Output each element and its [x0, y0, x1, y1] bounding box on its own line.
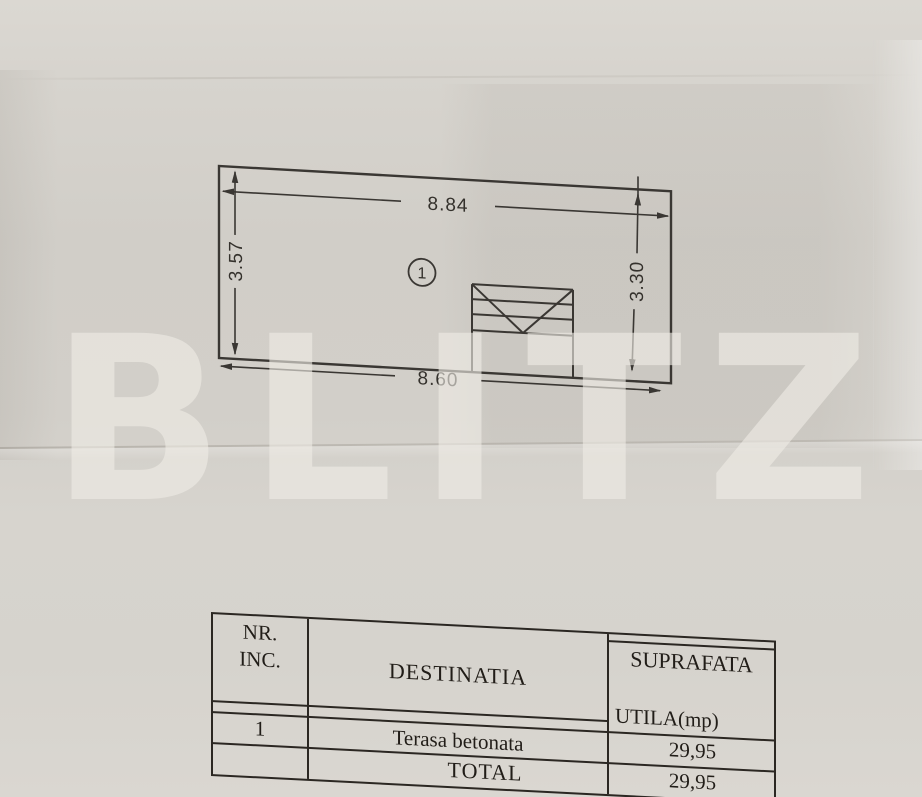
dimension-line-left: 3.57: [226, 171, 247, 354]
table-column-divider-2: [607, 634, 609, 794]
table-column-divider-1: [307, 619, 309, 779]
dimension-line-right: 3.30: [627, 176, 648, 371]
stair-symbol: [472, 284, 573, 378]
dimension-line-top: 8.84: [223, 182, 668, 228]
row1-nr-cell: 1: [213, 714, 307, 744]
room-number-label: 1: [418, 265, 427, 282]
dimension-label-top: 8.84: [428, 194, 469, 217]
dimension-label-right: 3.30: [627, 260, 648, 302]
header-nr-line1: NR.: [213, 618, 307, 648]
dimension-label-left: 3.57: [226, 240, 247, 282]
header-nr-line2: INC.: [213, 645, 307, 675]
area-table: NR. INC. DESTINATIA SUPRAFATA UTILA(mp) …: [211, 612, 776, 797]
dimension-label-bottom: 8.60: [418, 368, 459, 391]
header-suprafata-line2: UTILA(mp): [615, 703, 719, 733]
room-number-badge: 1: [409, 258, 436, 287]
scanned-document-page: 8.84 3.57 3.30 8.60: [0, 0, 922, 797]
header-destinatia: DESTINATIA: [309, 654, 607, 695]
header-suprafata-line1: SUPRAFATA: [611, 645, 772, 679]
